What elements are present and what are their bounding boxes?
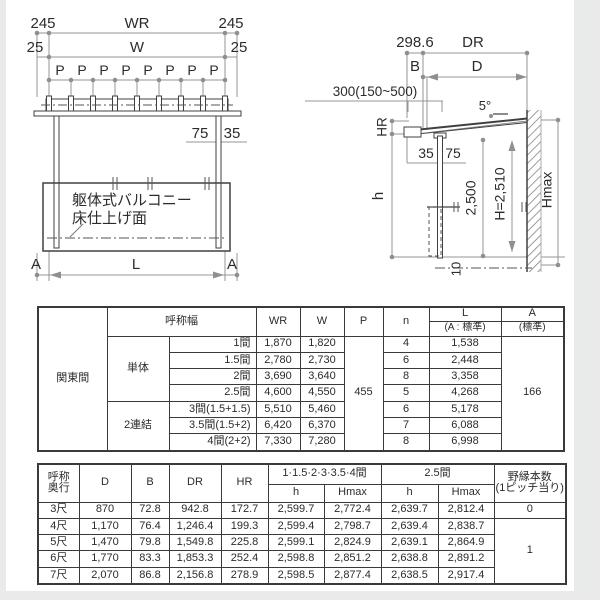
hmax2-cell: 2,812.4 [438,502,494,518]
dim-label-245-right: 245 [218,15,243,32]
col-header-joist: 野縁本数 (1ピッチ当り) [494,464,566,502]
hmax1-cell: 2,851.2 [324,551,381,567]
col-header-l: L [429,307,501,321]
h2-cell: 2,639.1 [381,535,438,551]
depth-table: 呼称 奥行 D B DR HR 1·1.5·2·3·3.5·4間 2.5間 野縁… [37,463,567,585]
group-single-cell: 単体 [107,336,169,401]
hmax1-cell: 2,877.4 [324,567,381,584]
h1-cell: 2,598.8 [268,551,324,567]
dim-label-d: D [472,58,483,75]
size-cell: 2.5間 [169,385,256,401]
sub-header-h: h [381,484,438,502]
col-header-b: B [131,464,169,502]
dim-label-298-6: 298.6 [396,34,434,51]
dim-label-10: 10 [448,262,463,276]
col-header-depth-name: 呼称 奥行 [38,464,79,502]
size-cell: 2間 [169,369,256,385]
spec-sheet-page: { "front_view": { "dim_245_left": "245",… [0,0,600,600]
pitch-label: P [77,62,86,78]
w-cell: 5,460 [300,401,344,417]
dim-label-w: W [130,39,145,56]
hmax1-cell: 2,798.7 [324,518,381,534]
h2-cell: 2,639.7 [381,502,438,518]
pitch-label: P [187,62,196,78]
group-header-spans: 1·1.5·2·3·3.5·4間 [268,464,381,484]
d-cell: 1,170 [79,518,131,534]
n-cell: 4 [383,336,429,352]
dr-cell: 1,549.8 [169,535,221,551]
dim-label-wr: WR [125,15,150,32]
dim-label-245-left: 245 [30,15,55,32]
group-double-cell: 2連結 [107,401,169,451]
d-cell: 870 [79,502,131,518]
hr-cell: 172.7 [221,502,268,518]
hmax2-cell: 2,917.4 [438,567,494,584]
h1-cell: 2,598.5 [268,567,324,584]
col-header-p: P [344,307,383,336]
balcony-note-line2: 床仕上げ面 [72,210,147,227]
n-cell: 8 [383,369,429,385]
region-cell: 関東間 [38,307,107,451]
l-cell: 2,448 [429,352,501,368]
b-cell: 72.8 [131,502,169,518]
d-cell: 1,470 [79,535,131,551]
dim-label-hr: HR [375,117,390,137]
pitch-label: P [209,62,218,78]
pitch-label: P [121,62,130,78]
n-cell: 6 [383,352,429,368]
w-cell: 6,370 [300,418,344,434]
kanto-width-table: 関東間 呼称幅 WR W P n L A (A : 標準) (標準) 単体 1間… [37,306,565,452]
hmax2-cell: 2,891.2 [438,551,494,567]
size-cell: 1.5間 [169,352,256,368]
col-header-dr: DR [169,464,221,502]
sub-header-hmax: Hmax [438,484,494,502]
h2-cell: 2,639.4 [381,518,438,534]
dim-label-5deg: 5° [479,98,491,113]
wr-cell: 1,870 [256,336,300,352]
h1-cell: 2,599.7 [268,502,324,518]
dim-label-75: 75 [192,125,209,142]
d-cell: 1,770 [79,551,131,567]
hr-cell: 278.9 [221,567,268,584]
pitch-label: P [55,62,64,78]
wr-cell: 5,510 [256,401,300,417]
hr-cell: 252.4 [221,551,268,567]
h2-cell: 2,638.5 [381,567,438,584]
balcony-note-line1: 躯体式バルコニー [72,192,192,209]
joist-count-merged-cell: 1 [494,518,566,584]
dim-label-b: B [410,58,420,75]
col-header-w: W [300,307,344,336]
hr-cell: 199.3 [221,518,268,534]
l-cell: 1,538 [429,336,501,352]
wr-cell: 6,420 [256,418,300,434]
hr-cell: 225.8 [221,535,268,551]
w-cell: 1,820 [300,336,344,352]
sub-header-h: h [268,484,324,502]
col-header-a: A [501,307,564,321]
w-cell: 3,640 [300,369,344,385]
joist-header-line2: (1ピッチ当り) [495,483,566,495]
dim-label-75: 75 [445,145,461,161]
side-elevation-diagram: 298.6 DR B D 300(150~500) 5° 35 75 HR h … [300,0,590,300]
depth-name-cell: 7尺 [38,567,79,584]
dim-label-l: L [132,256,140,273]
dim-label-h: h [370,192,387,200]
p-value-cell: 455 [344,336,383,451]
hmax1-cell: 2,824.9 [324,535,381,551]
dr-cell: 2,156.8 [169,567,221,584]
depth-name-cell: 3尺 [38,502,79,518]
col-header-hr: HR [221,464,268,502]
n-cell: 7 [383,418,429,434]
dim-label-dr: DR [462,34,484,51]
w-cell: 2,730 [300,352,344,368]
wr-cell: 7,330 [256,434,300,451]
hmax2-cell: 2,838.7 [438,518,494,534]
group-header-2-5ken: 2.5間 [381,464,494,484]
col-header-n: n [383,307,429,336]
pitch-label: P [165,62,174,78]
l-cell: 6,088 [429,418,501,434]
dim-label-25-left: 25 [27,39,44,56]
l-cell: 5,178 [429,401,501,417]
joist-count-cell: 0 [494,502,566,518]
dim-label-hmax: Hmax [539,172,555,209]
w-cell: 4,550 [300,385,344,401]
n-cell: 5 [383,385,429,401]
dim-label-25-right: 25 [231,39,248,56]
hmax1-cell: 2,772.4 [324,502,381,518]
dim-label-300-range: 300(150~500) [333,84,417,99]
col-header-a-sub: (標準) [501,321,564,336]
dim-label-35: 35 [224,125,241,142]
col-header-width: 呼称幅 [107,307,256,336]
dr-cell: 942.8 [169,502,221,518]
depth-name-line2: 奥行 [39,483,79,495]
front-elevation-diagram: 245 WR 245 25 W 25 75 35 A L A P P P P P… [0,0,290,300]
wr-cell: 3,690 [256,369,300,385]
dr-cell: 1,853.3 [169,551,221,567]
h2-cell: 2,638.8 [381,551,438,567]
b-cell: 76.4 [131,518,169,534]
d-cell: 2,070 [79,567,131,584]
pitch-label: P [99,62,108,78]
size-cell: 4間(2+2) [169,434,256,451]
l-cell: 4,268 [429,385,501,401]
dim-label-h2510: H=2,510 [492,167,508,221]
wr-cell: 4,600 [256,385,300,401]
size-cell: 3.5間(1.5+2) [169,418,256,434]
l-cell: 3,358 [429,369,501,385]
size-cell: 1間 [169,336,256,352]
col-header-wr: WR [256,307,300,336]
b-cell: 83.3 [131,551,169,567]
depth-name-cell: 4尺 [38,518,79,534]
hmax2-cell: 2,864.9 [438,535,494,551]
dim-label-a-left: A [31,256,41,273]
col-header-d: D [79,464,131,502]
wr-cell: 2,780 [256,352,300,368]
h1-cell: 2,599.4 [268,518,324,534]
size-cell: 3間(1.5+1.5) [169,401,256,417]
sub-header-hmax: Hmax [324,484,381,502]
w-cell: 7,280 [300,434,344,451]
n-cell: 8 [383,434,429,451]
dim-label-2500: 2,500 [463,180,479,215]
dr-cell: 1,246.4 [169,518,221,534]
dim-label-a-right: A [227,256,237,273]
a-value-cell: 166 [501,336,564,451]
depth-name-cell: 6尺 [38,551,79,567]
depth-name-cell: 5尺 [38,535,79,551]
l-cell: 6,998 [429,434,501,451]
col-header-l-sub: (A : 標準) [429,321,501,336]
dim-label-35: 35 [418,145,434,161]
n-cell: 6 [383,401,429,417]
b-cell: 79.8 [131,535,169,551]
h1-cell: 2,599.1 [268,535,324,551]
pitch-label: P [143,62,152,78]
b-cell: 86.8 [131,567,169,584]
